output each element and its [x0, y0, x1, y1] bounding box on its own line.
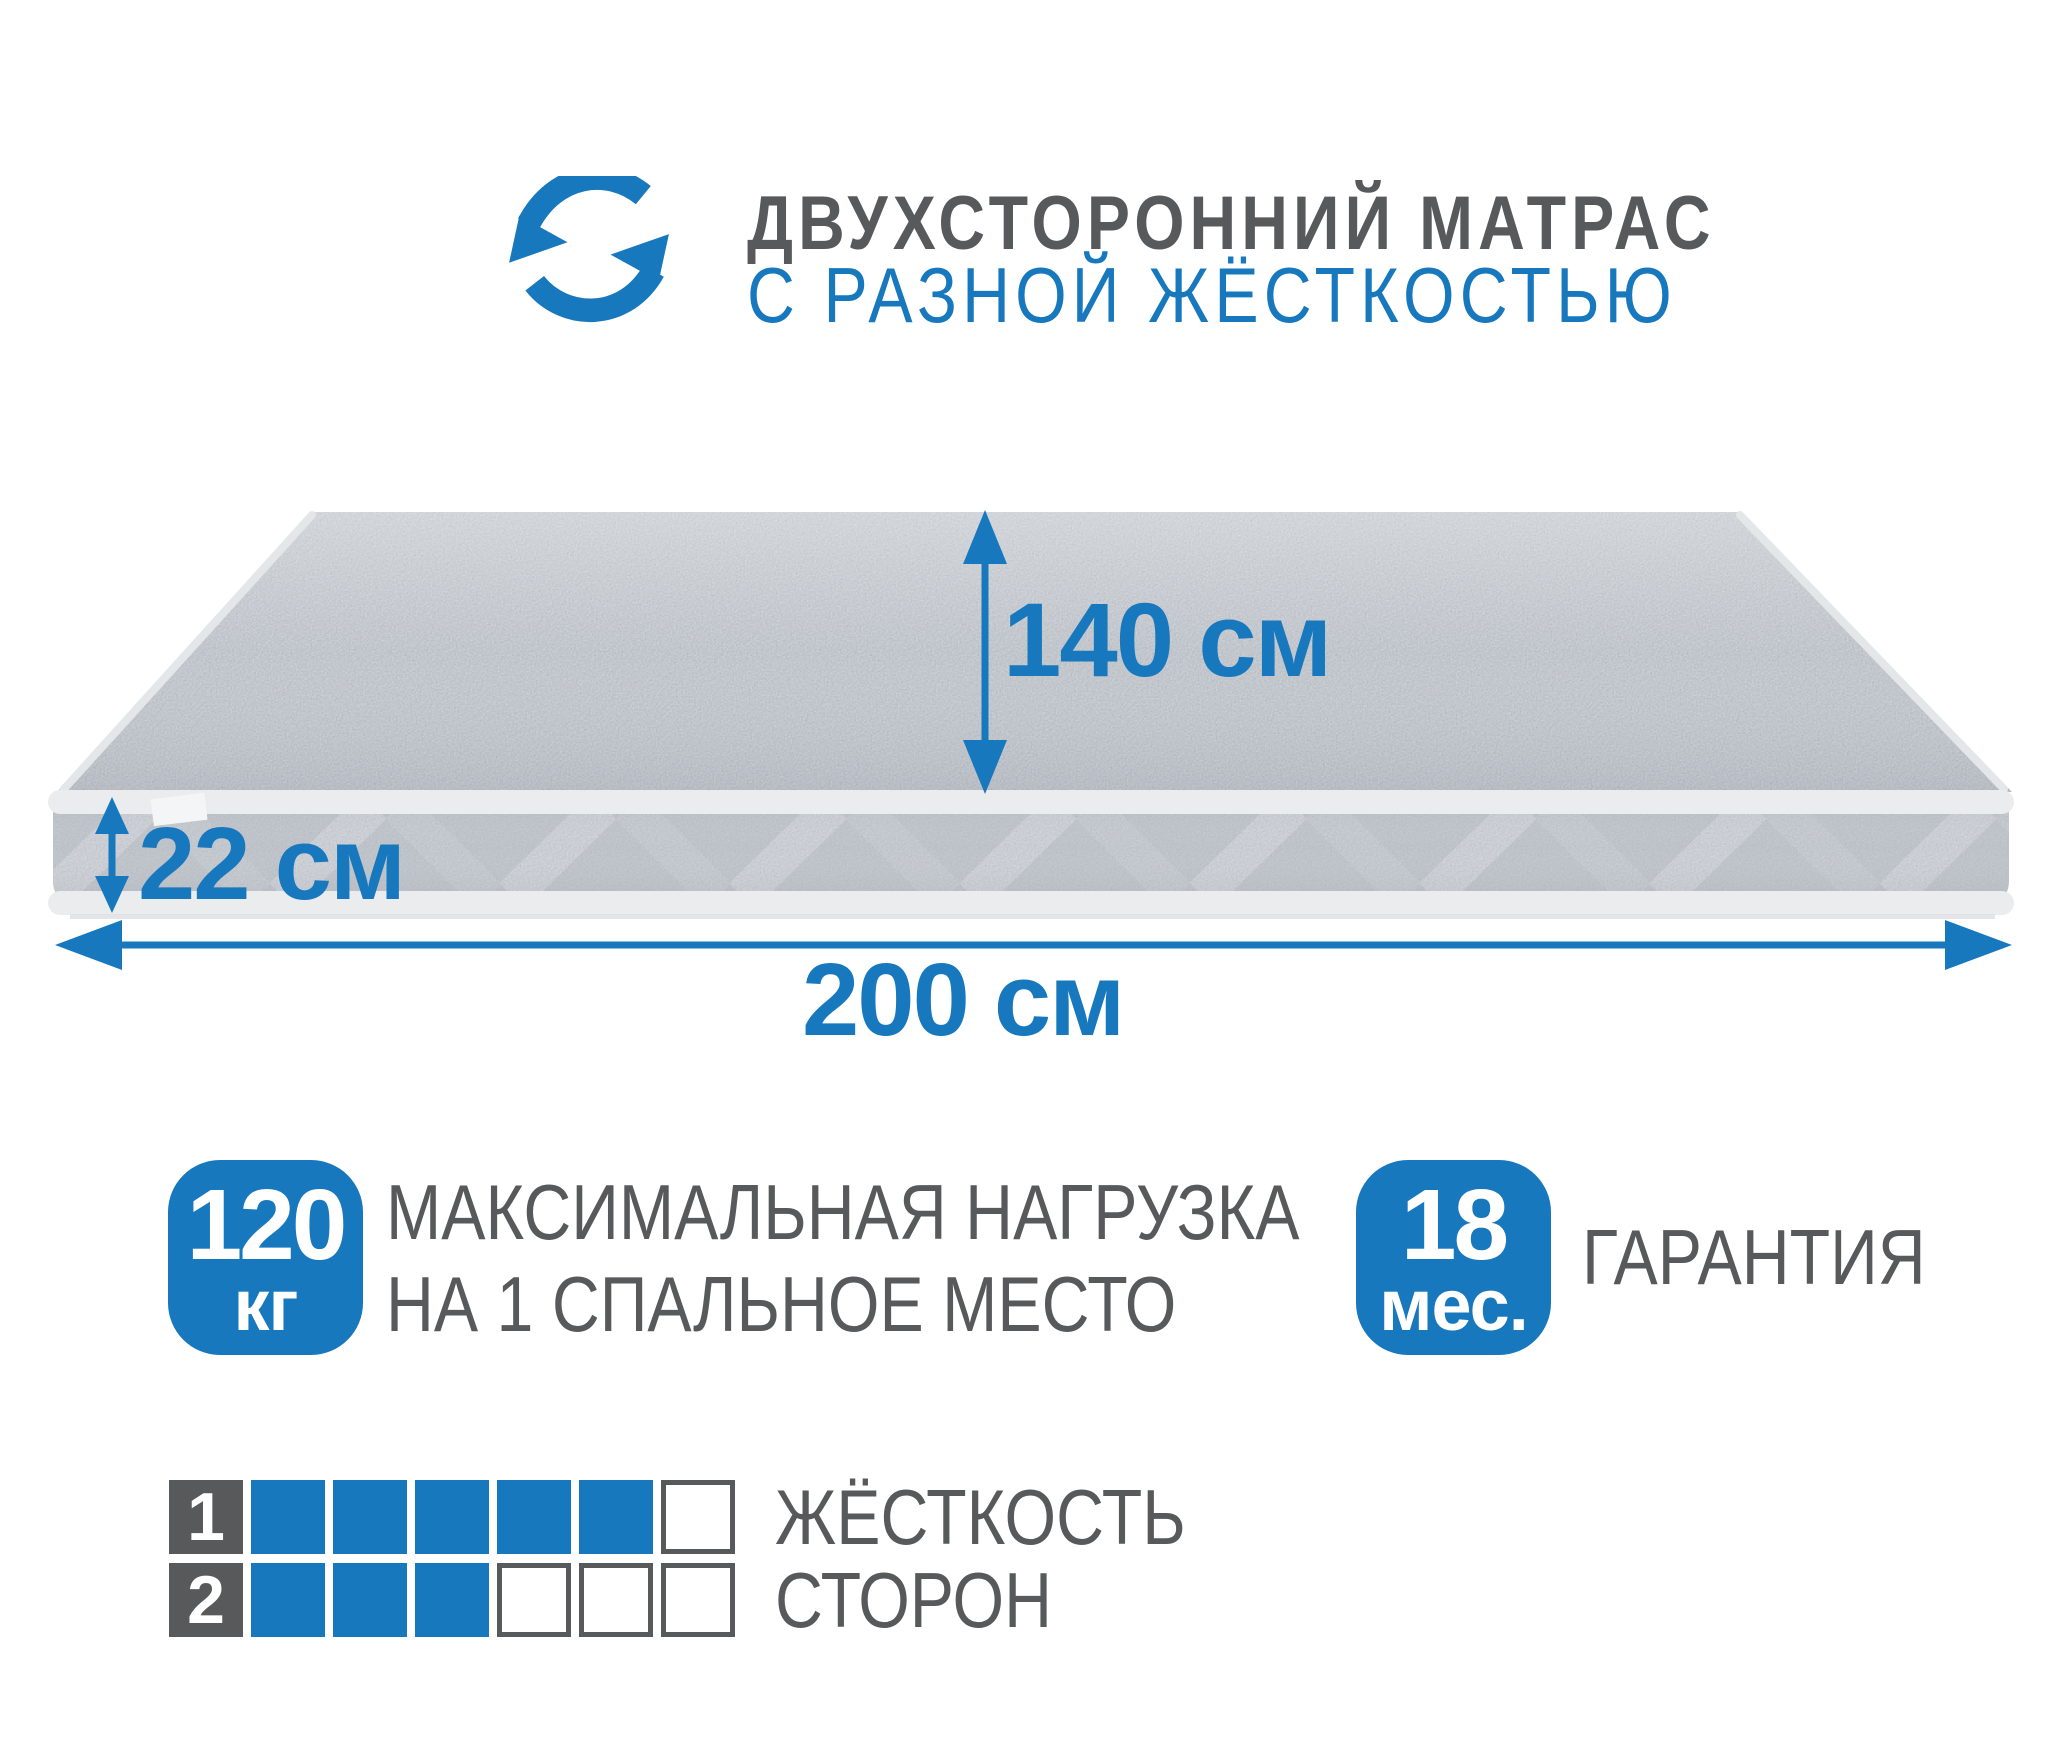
- warranty-label: ГАРАНТИЯ: [1582, 1212, 1986, 1302]
- firmness-cell-filled: [497, 1480, 571, 1554]
- firmness-cell-filled: [415, 1563, 489, 1637]
- firmness-row: 2: [169, 1563, 735, 1637]
- height-label: 22см: [138, 812, 404, 915]
- firmness-cell-empty: [497, 1563, 571, 1637]
- mattress-infographic: ДВУХСТОРОННИЙ МАТРАС С РАЗНОЙ ЖЁСТКОСТЬЮ…: [0, 0, 2048, 1757]
- firmness-cell-filled: [251, 1563, 325, 1637]
- firmness-label-line1: ЖЁСТКОСТЬ: [775, 1480, 1258, 1554]
- firmness-cell-filled: [251, 1480, 325, 1554]
- firmness-cell-empty: [661, 1563, 735, 1637]
- max-load-value: 120: [187, 1177, 345, 1273]
- warranty-unit: мес.: [1379, 1273, 1527, 1339]
- length-label: 200см: [802, 948, 1123, 1051]
- rotate-arrows-icon: [506, 176, 672, 326]
- firmness-row: 1: [169, 1480, 735, 1554]
- firmness-label-line2: СТОРОН: [775, 1563, 1101, 1637]
- max-load-unit: кг: [233, 1273, 297, 1339]
- max-load-label: МАКСИМАЛЬНАЯ НАГРУЗКА НА 1 СПАЛЬНОЕ МЕСТ…: [386, 1166, 1461, 1350]
- firmness-cell-filled: [333, 1563, 407, 1637]
- warranty-value: 18: [1401, 1177, 1506, 1273]
- firmness-cell-filled: [415, 1480, 489, 1554]
- firmness-side-number: 2: [169, 1563, 243, 1637]
- firmness-scale: 12: [169, 1480, 735, 1646]
- page-subtitle: С РАЗНОЙ ЖЁСТКОСТЬЮ: [747, 256, 1841, 334]
- firmness-side-number: 1: [169, 1480, 243, 1554]
- firmness-cell-filled: [579, 1480, 653, 1554]
- firmness-cell-empty: [661, 1480, 735, 1554]
- max-load-badge: 120 кг: [168, 1160, 363, 1355]
- width-label: 140см: [1003, 588, 1330, 693]
- firmness-cell-empty: [579, 1563, 653, 1637]
- warranty-badge: 18 мес.: [1356, 1160, 1551, 1355]
- firmness-cell-filled: [333, 1480, 407, 1554]
